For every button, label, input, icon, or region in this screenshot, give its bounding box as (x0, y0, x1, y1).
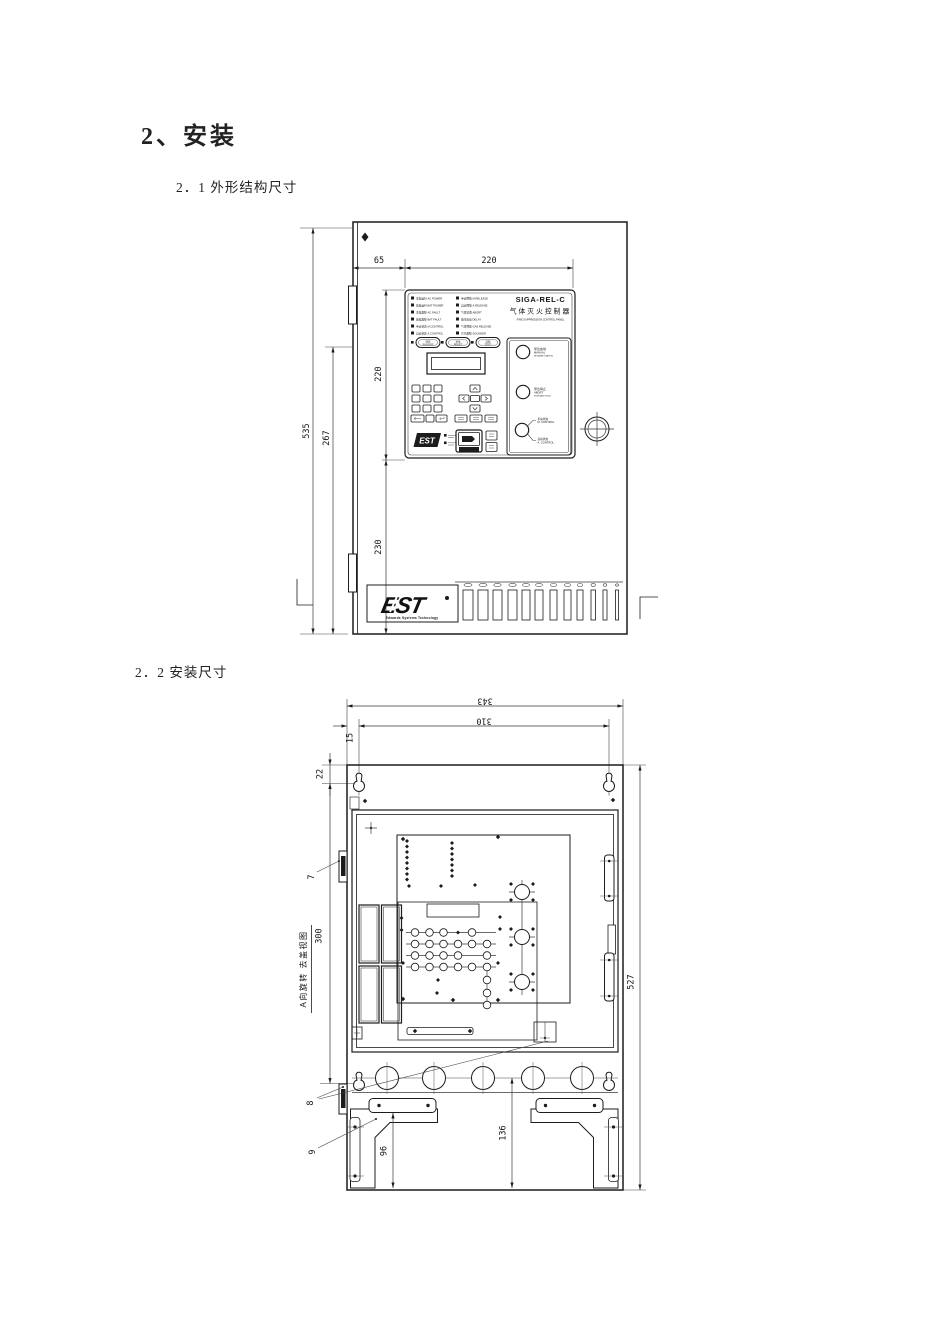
emergency-panel: 紧急启动 MANUAL RELEASE STATION 紧急停止 ABORT P… (507, 338, 571, 455)
control-panel-face: SIGA-REL-C 气体灭火控制器 FIRE SUPPRESSION CONT… (405, 290, 575, 458)
left-arrow-icon (463, 397, 465, 401)
door-hinges-rear (600, 855, 619, 1001)
dim-220-width: 220 (481, 256, 496, 266)
lock-crosshair-icon (580, 412, 614, 446)
enter-key (436, 415, 447, 422)
led-label: 声光故障 SOUNDER (461, 332, 486, 336)
installation-dimensions-drawing: 343 310 15 22 300 527 (295, 690, 655, 1200)
dim-15: 15 (346, 733, 356, 743)
led-label: 自动状态 A.CONTROL (416, 332, 444, 336)
keyhole-mounting-holes (350, 773, 615, 1090)
dim-267: 267 (322, 430, 332, 445)
keyhole-icon (354, 773, 365, 795)
up-arrow-icon (473, 387, 477, 390)
svg-text:手动状态: 手动状态 (538, 417, 549, 421)
callout-9: 9 (308, 1149, 318, 1154)
led-label: 气体喷洒 ABORT (461, 311, 482, 315)
dim-230: 230 (374, 539, 384, 554)
center-mark-icon (362, 233, 369, 242)
corner-mark-left (297, 579, 313, 605)
dim-535: 535 (302, 423, 312, 438)
keyhole-icon (604, 1072, 615, 1090)
callout-7: 7 (307, 874, 317, 879)
led-indicators: 主电运行 AC POWER 备电运行 BAT POWER 主电故障 AC FAU… (411, 297, 492, 336)
led-label: 主电运行 AC POWER (416, 297, 442, 301)
hinge-lower (349, 554, 357, 592)
cable-knockouts (352, 1062, 618, 1094)
company-name: Edwards Systems Technology (386, 616, 439, 620)
led-label: 备电故障 BAT FAULT (416, 318, 442, 322)
dim-300: 300 (315, 928, 325, 943)
release-button-label-bar (459, 447, 479, 452)
dim-220-height: 220 (374, 366, 384, 381)
terminal-compartments (359, 905, 402, 1023)
svg-text:EST: EST (419, 437, 436, 446)
section-1-title: 2．1 外形结构尺寸 (176, 176, 297, 196)
vent-slots (463, 583, 619, 620)
round-button-backs (509, 880, 535, 995)
led-pin-columns (405, 839, 477, 888)
lcd-display (427, 353, 485, 374)
logo-strip: EST Edwards Systems Technology (367, 582, 623, 622)
down-arrow-icon (473, 407, 477, 410)
lower-fittings (352, 1022, 556, 1042)
lcd-slot (427, 904, 479, 917)
down-key (470, 405, 480, 412)
panel-model: SIGA-REL-C (516, 295, 566, 304)
keypad-pcb (398, 902, 537, 1040)
dim-136: 136 (499, 1125, 509, 1140)
est-logo: EST (379, 592, 429, 618)
manual-release-button (516, 345, 529, 358)
dim-310: 310 (476, 716, 491, 726)
backspace-icon (414, 417, 421, 420)
left-dimensions: 22 300 (315, 753, 331, 1084)
page-title: 2、安装 (141, 116, 237, 151)
panel-name-cn: 气体灭火控制器 (510, 307, 572, 316)
led-label: 备电运行 BAT POWER (416, 304, 443, 308)
abort-button (516, 385, 529, 398)
svg-text:PUSH AND HOLD: PUSH AND HOLD (534, 395, 551, 398)
svg-text:RELEASE STATION: RELEASE STATION (534, 355, 553, 358)
release-button-icon (462, 436, 475, 442)
top-dimensions: 343 310 15 (333, 696, 623, 744)
led-label: 气体释放 GAS RELEASE (461, 325, 492, 329)
svg-text:A. CONTROL: A. CONTROL (538, 441, 555, 445)
manual-page: 2、安装 2．1 外形结构尺寸 2．2 安装尺寸 (0, 0, 950, 1344)
function-buttons: 消音 SILENCE 复位 RESET 自检 TEST (411, 338, 500, 348)
corner-mark-right (640, 597, 658, 619)
inner-frame-inner (357, 815, 614, 1048)
up-key (470, 385, 480, 392)
panel-bottom-row: EST (414, 430, 498, 452)
left-hinge-pieces (339, 851, 347, 1114)
svg-text:紧急启动: 紧急启动 (534, 346, 546, 351)
keypad (411, 385, 497, 422)
led-label: 手动状态 M.CONTROL (416, 325, 444, 329)
enter-icon (440, 417, 445, 420)
view-label: A向旋转 去盖视图 (298, 930, 308, 1007)
bottom-brackets (346, 1099, 622, 1189)
callout-8: 8 (306, 1100, 316, 1105)
svg-text:RESET: RESET (454, 344, 463, 347)
right-key (481, 395, 491, 402)
dimension-lines: 65 220 535 267 220 230 (300, 228, 573, 634)
frame-cross-mark (365, 822, 377, 834)
panel-name-en: FIRE SUPPRESSION CONTROL PANEL (517, 318, 565, 322)
section-2-title: 2．2 安装尺寸 (135, 661, 227, 681)
led-label: 延时启动 DELAY (461, 318, 481, 322)
bottom-dimensions: 96 136 (380, 1078, 513, 1188)
key-contact-grid (406, 929, 496, 1009)
svg-text:SILENCE: SILENCE (423, 344, 434, 347)
led-label: 自动释放 A.RELEASE (461, 304, 488, 308)
right-arrow-icon (485, 397, 487, 401)
svg-text:TEST: TEST (485, 344, 492, 347)
dim-22: 22 (316, 769, 326, 779)
led-label: 主电故障 AC FAULT (416, 311, 440, 315)
svg-text:MANUAL: MANUAL (534, 351, 546, 355)
svg-text:自动状态: 自动状态 (538, 437, 549, 441)
svg-text:ABORT: ABORT (534, 391, 544, 395)
inner-frame-outer (352, 810, 618, 1052)
keyhole-icon (604, 773, 615, 795)
dim-343: 343 (477, 696, 492, 706)
outline-dimensions-drawing: 65 220 535 267 220 230 SIGA-REL-C 气体灭火控制… (290, 215, 670, 650)
svg-text:紧急停止: 紧急停止 (534, 386, 546, 391)
led-label: 手动释放 M.RELEASE (461, 297, 488, 301)
logo-dot-icon (445, 596, 449, 600)
mode-switch (515, 423, 528, 436)
hinge-upper (349, 286, 357, 324)
left-key (459, 395, 469, 402)
dim-96: 96 (380, 1146, 390, 1156)
dim-65: 65 (374, 256, 384, 266)
svg-text:M. CONTROL: M. CONTROL (538, 420, 555, 424)
dim-527: 527 (627, 974, 637, 989)
